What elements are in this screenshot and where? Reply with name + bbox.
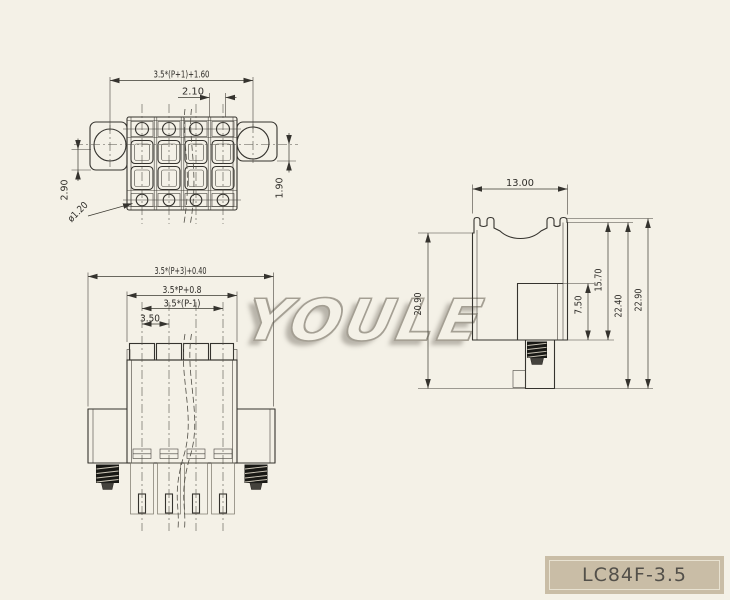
dim-hole-dia: ø1.20 (66, 200, 91, 225)
dim-total-b: 22.90 (634, 289, 645, 312)
dim-overall: 3.5*(P+3)+0.40 (155, 266, 207, 277)
drawing-sheet: YOULE (0, 0, 730, 600)
technical-drawing: 3.5*(P+1)+1.60 2.10 2.90 1.90 ø1.20 (0, 0, 730, 600)
latch-prong (560, 218, 567, 226)
top-view: 3.5*(P+1)+1.60 2.10 2.90 1.90 ø1.20 (60, 70, 299, 225)
dim-mount-pitch: 3.5*(P+1)+1.60 (154, 70, 210, 81)
dim-body: 3.5*P+0.8 (163, 285, 202, 296)
dim-total-a: 22.40 (614, 295, 625, 318)
dim-slot: 2.10 (182, 87, 204, 98)
latch-prong (547, 218, 554, 229)
top-bump (211, 344, 234, 361)
break-line (177, 334, 188, 529)
block-notch (513, 371, 526, 388)
dim-boss-height: 7.50 (574, 296, 585, 315)
mounting-screw (96, 465, 119, 490)
break-line (184, 109, 187, 223)
break-line (184, 334, 195, 529)
dim-left-height: 2.90 (60, 180, 71, 201)
cavity-profile (494, 228, 547, 239)
dim-right-height: 1.90 (275, 178, 286, 199)
side-view: 13.00 20.90 7.50 15.70 22.40 22.90 (413, 178, 653, 389)
dim-body-height: 20.90 (413, 293, 424, 316)
clamp-screw (527, 342, 547, 365)
latch-prong (487, 218, 494, 229)
front-body (127, 360, 237, 463)
latch-prong (473, 218, 481, 234)
dim-upper-height: 15.70 (594, 269, 605, 292)
part-number: LC84F-3.5 (582, 564, 687, 586)
part-number-box: LC84F-3.5 (545, 556, 724, 594)
dim-pin-span: 3.5*(P-1) (164, 299, 201, 310)
front-view: 3.5*(P+3)+0.40 3.5*P+0.8 3.5*(P-1) 3.50 (88, 266, 275, 531)
part-number-frame: LC84F-3.5 (549, 560, 720, 590)
mounting-screw (245, 465, 268, 490)
dim-width: 13.00 (506, 178, 534, 189)
dim-pitch: 3.50 (140, 314, 160, 325)
